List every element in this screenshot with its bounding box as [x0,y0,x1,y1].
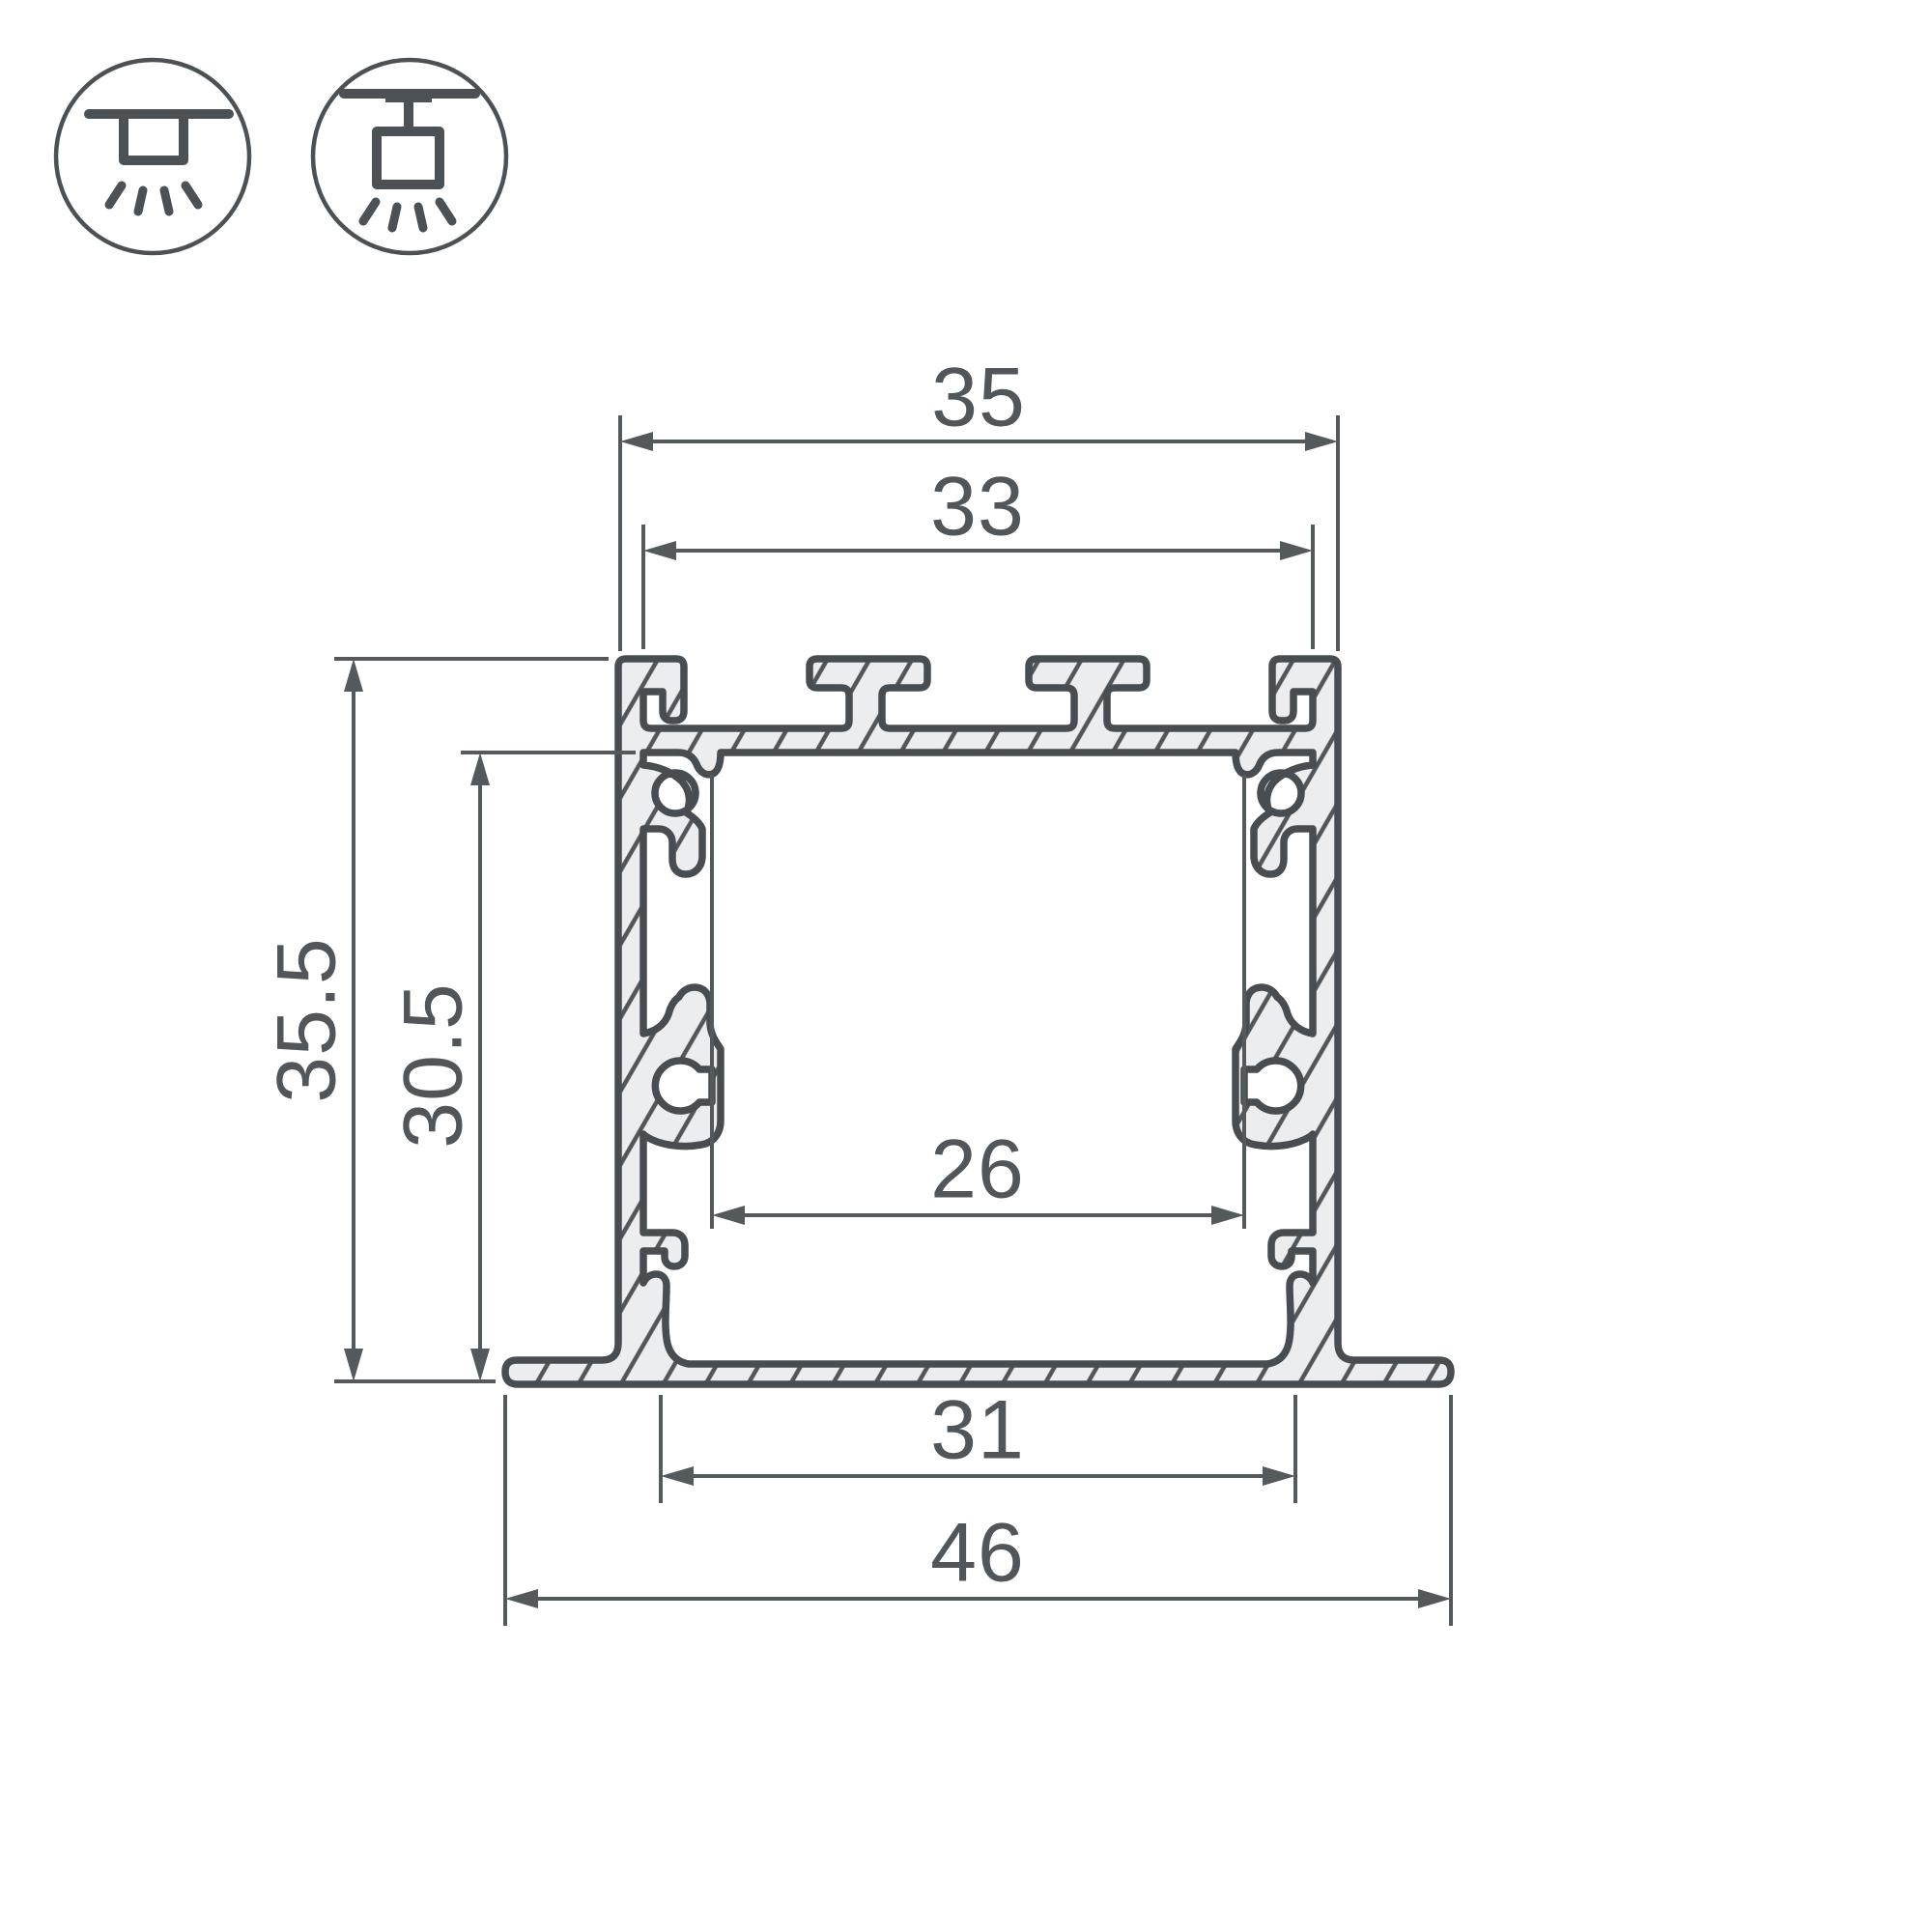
profile-body [505,659,1451,1384]
light-rays-icon [363,202,452,228]
light-rays-icon [109,185,198,212]
surface-mount-icon [313,60,506,253]
dimension-label-inner-cavity-width: 26 [930,1122,1025,1218]
diagram-canvas: 35 33 35.5 30.5 26 31 46 [0,0,1932,1932]
dimension-label-outer-height: 35.5 [260,937,355,1102]
dimension-30-5 [461,753,636,1381]
dimension-label-top-inner-width: 33 [930,460,1025,555]
recessed-mount-icon [56,60,249,253]
dimension-label-bottom-opening-width: 31 [930,1383,1025,1479]
dimension-label-inner-height: 30.5 [386,982,482,1148]
dimension-label-total-flange-width: 46 [930,1506,1025,1602]
dimension-label-top-outer-width: 35 [931,351,1026,446]
